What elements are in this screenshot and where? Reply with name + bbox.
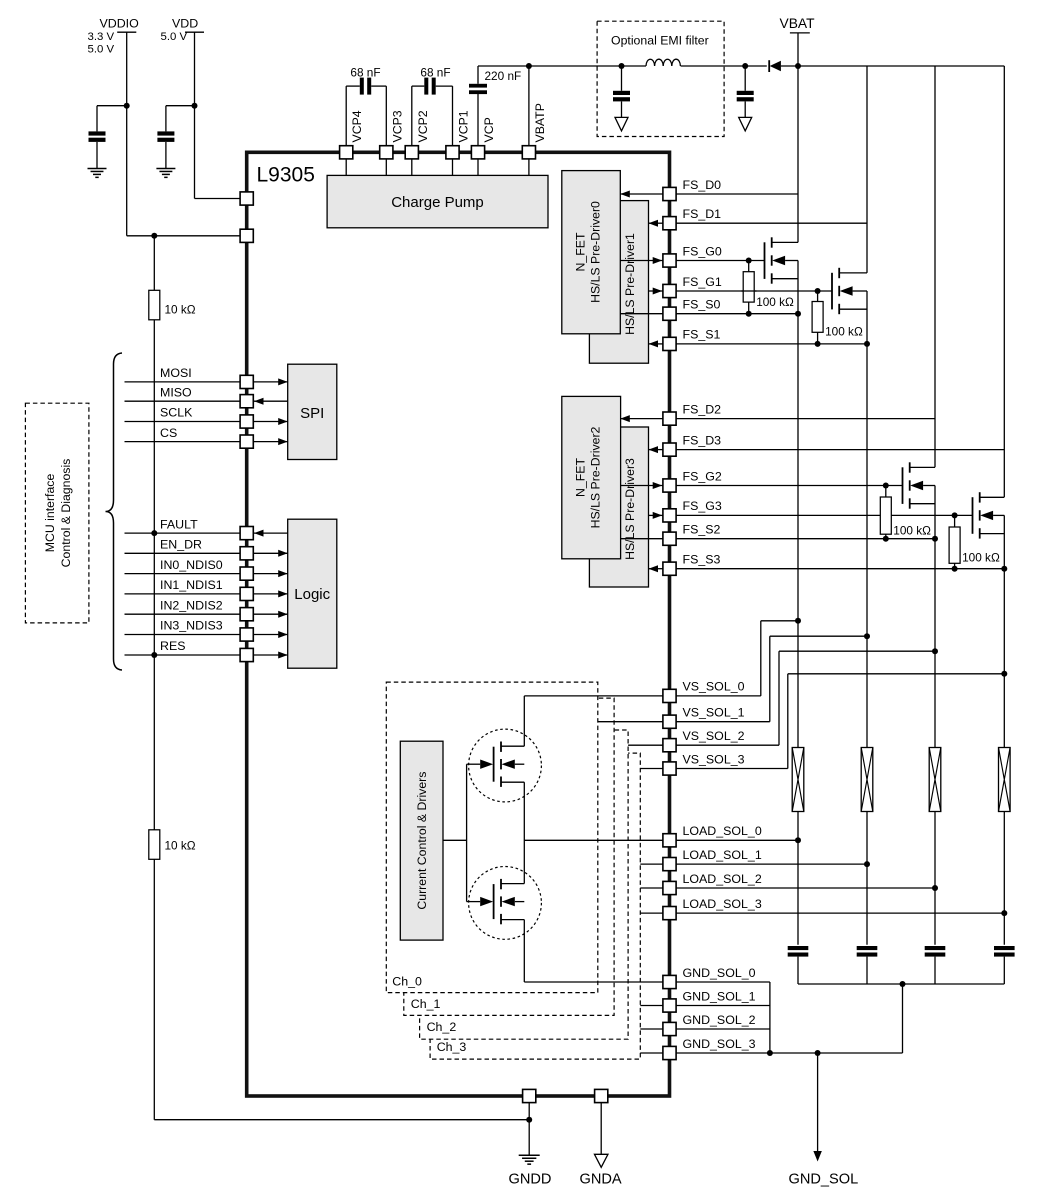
svg-text:68 nF: 68 nF <box>420 66 450 80</box>
svg-text:VS_SOL_1: VS_SOL_1 <box>683 706 745 720</box>
svg-text:VS_SOL_2: VS_SOL_2 <box>683 729 745 743</box>
svg-text:220 nF: 220 nF <box>485 69 522 83</box>
svg-text:5.0 V: 5.0 V <box>161 31 188 43</box>
svg-text:L9305: L9305 <box>257 164 315 187</box>
svg-text:GND_SOL_0: GND_SOL_0 <box>683 966 756 980</box>
svg-text:FS_D1: FS_D1 <box>683 207 722 221</box>
svg-text:IN2_NDIS2: IN2_NDIS2 <box>160 598 223 612</box>
svg-text:MOSI: MOSI <box>160 366 192 380</box>
svg-text:Current Control & Drivers: Current Control & Drivers <box>415 772 429 910</box>
svg-text:SCLK: SCLK <box>160 406 193 420</box>
svg-text:FS_G1: FS_G1 <box>683 275 722 289</box>
svg-text:VBAT: VBAT <box>780 16 816 31</box>
svg-text:IN1_NDIS1: IN1_NDIS1 <box>160 578 223 592</box>
svg-text:EN_DR: EN_DR <box>160 538 202 552</box>
svg-text:VCP2: VCP2 <box>416 110 430 142</box>
svg-text:100 kΩ: 100 kΩ <box>825 325 863 339</box>
svg-text:HS/LS Pre-Driver3: HS/LS Pre-Driver3 <box>623 458 637 560</box>
svg-text:LOAD_SOL_1: LOAD_SOL_1 <box>683 848 762 862</box>
svg-text:LOAD_SOL_2: LOAD_SOL_2 <box>683 872 762 886</box>
svg-text:Ch_3: Ch_3 <box>437 1040 467 1054</box>
svg-text:MCU interface: MCU interface <box>43 474 57 553</box>
svg-text:HS/LS Pre-Driver2: HS/LS Pre-Driver2 <box>589 426 603 528</box>
svg-text:VCP1: VCP1 <box>457 110 471 142</box>
svg-text:FAULT: FAULT <box>160 517 198 531</box>
svg-text:FS_G3: FS_G3 <box>683 499 722 513</box>
svg-text:FS_G2: FS_G2 <box>683 469 722 483</box>
svg-text:LOAD_SOL_0: LOAD_SOL_0 <box>683 824 762 838</box>
svg-text:FS_S2: FS_S2 <box>683 523 721 537</box>
svg-text:MISO: MISO <box>160 385 192 399</box>
svg-text:VS_SOL_3: VS_SOL_3 <box>683 752 745 766</box>
svg-text:10 kΩ: 10 kΩ <box>165 303 196 317</box>
svg-text:HS/LS Pre-Driver0: HS/LS Pre-Driver0 <box>589 201 603 303</box>
svg-text:FS_D3: FS_D3 <box>683 433 722 447</box>
svg-text:Charge Pump: Charge Pump <box>391 194 484 211</box>
svg-text:IN3_NDIS3: IN3_NDIS3 <box>160 619 223 633</box>
svg-text:Ch_2: Ch_2 <box>427 1020 457 1034</box>
svg-text:LOAD_SOL_3: LOAD_SOL_3 <box>683 897 762 911</box>
svg-text:FS_S3: FS_S3 <box>683 553 721 567</box>
svg-text:VCP: VCP <box>482 117 496 142</box>
svg-text:FS_D2: FS_D2 <box>683 402 722 416</box>
svg-text:FS_S0: FS_S0 <box>683 298 721 312</box>
svg-text:N_FET: N_FET <box>574 232 588 271</box>
svg-text:VCP4: VCP4 <box>350 110 364 142</box>
svg-text:Ch_1: Ch_1 <box>411 997 441 1011</box>
svg-text:IN0_NDIS0: IN0_NDIS0 <box>160 558 223 572</box>
svg-text:Ch_0: Ch_0 <box>392 974 422 988</box>
svg-text:GNDD: GNDD <box>509 1172 552 1188</box>
svg-text:VDD: VDD <box>172 17 198 31</box>
svg-text:FS_G0: FS_G0 <box>683 244 722 258</box>
svg-text:GND_SOL_2: GND_SOL_2 <box>683 1013 756 1027</box>
svg-text:VDDIO: VDDIO <box>100 17 140 31</box>
svg-text:Logic: Logic <box>294 586 330 603</box>
svg-text:VBATP: VBATP <box>533 103 547 142</box>
svg-text:SPI: SPI <box>300 405 324 422</box>
svg-text:68 nF: 68 nF <box>350 66 380 80</box>
svg-text:FS_S1: FS_S1 <box>683 328 721 342</box>
svg-text:FS_D0: FS_D0 <box>683 178 722 192</box>
svg-text:VCP3: VCP3 <box>390 110 404 142</box>
svg-text:Control & Diagnosis: Control & Diagnosis <box>59 459 73 568</box>
svg-text:100 kΩ: 100 kΩ <box>756 295 794 309</box>
svg-text:100 kΩ: 100 kΩ <box>893 524 931 538</box>
svg-text:RES: RES <box>160 639 185 653</box>
svg-text:GNDA: GNDA <box>580 1172 622 1188</box>
svg-text:3.3 V: 3.3 V <box>88 31 115 43</box>
svg-text:VS_SOL_0: VS_SOL_0 <box>683 680 745 694</box>
svg-text:GND_SOL_3: GND_SOL_3 <box>683 1037 756 1051</box>
svg-text:HS/LS Pre-Driver1: HS/LS Pre-Driver1 <box>623 233 637 335</box>
svg-text:10 kΩ: 10 kΩ <box>165 839 196 853</box>
svg-text:5.0 V: 5.0 V <box>88 44 115 56</box>
svg-text:100 kΩ: 100 kΩ <box>962 551 1000 565</box>
svg-text:CS: CS <box>160 426 177 440</box>
svg-text:GND_SOL_1: GND_SOL_1 <box>683 989 756 1003</box>
svg-text:Optional EMI filter: Optional EMI filter <box>611 34 709 48</box>
svg-text:GND_SOL: GND_SOL <box>789 1172 859 1188</box>
svg-text:N_FET: N_FET <box>574 458 588 497</box>
